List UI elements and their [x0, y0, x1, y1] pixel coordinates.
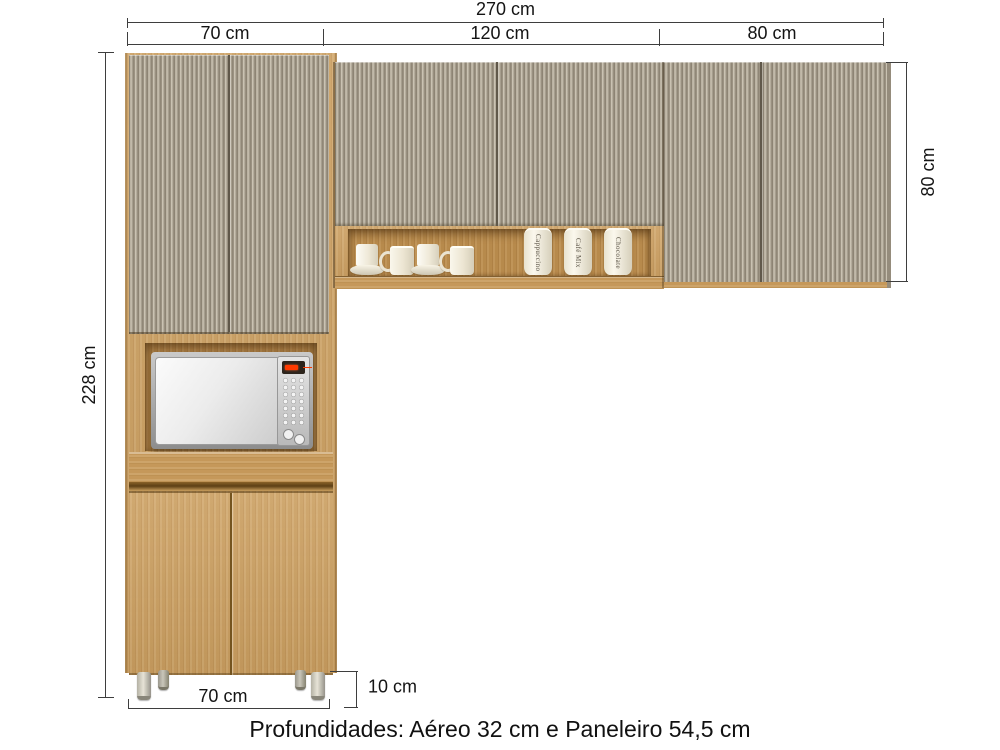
wall-cabinet-right [662, 62, 891, 288]
dim-total-height: 228 cm [105, 52, 106, 698]
dim-feet-height-label: 10 cm [368, 677, 417, 696]
canister-chocolate: Chocolate [604, 228, 632, 275]
dim-tick [127, 18, 128, 28]
upper-door-seam [228, 55, 230, 332]
dim-tick [883, 18, 884, 28]
canister-label: Chocolate [614, 237, 622, 269]
dim-total-height-label: 228 cm [80, 345, 99, 404]
microwave-knobs [282, 427, 306, 445]
shelf-interior: Cappuccino Café Mix Chocolate [348, 229, 651, 276]
dim-segment-left-label: 70 cm [200, 24, 249, 43]
product-dimension-diagram: Cappuccino Café Mix Chocolate 270 cm [0, 0, 1000, 750]
canister-cappuccino: Cappuccino [524, 228, 552, 275]
canister-cafe-mix: Café Mix [564, 228, 592, 275]
microwave-buttons [282, 377, 306, 425]
dim-tick [128, 699, 129, 709]
microwave-display [282, 361, 305, 374]
dim-tick [886, 62, 908, 63]
dim-base-width: 70 cm [128, 708, 330, 709]
cup-base [350, 265, 384, 275]
middle-door-seam [496, 62, 498, 226]
drawer-groove [129, 482, 333, 491]
microwave-control-panel [277, 356, 310, 446]
dim-tick [98, 52, 114, 53]
shelf-bottom-board [335, 276, 664, 289]
dim-base-width-label: 70 cm [198, 687, 247, 706]
cup-body [417, 244, 439, 266]
dim-tick [323, 29, 324, 46]
middle-doors [335, 62, 664, 226]
right-door-seam [760, 62, 762, 282]
paneleiro-upper-doors [129, 55, 329, 334]
depths-caption: Profundidades: Aéreo 32 cm e Paneleiro 5… [0, 716, 1000, 743]
open-shelf: Cappuccino Café Mix Chocolate [335, 226, 664, 288]
dim-tick [330, 671, 358, 672]
dim-tick [329, 699, 330, 709]
foot-back-right [295, 670, 306, 690]
dim-upper-height-label: 80 cm [919, 147, 938, 196]
lower-door-seam [230, 493, 232, 675]
paneleiro-lower-doors [129, 491, 333, 675]
microwave-niche [145, 343, 317, 451]
dim-segments: 70 cm 120 cm 80 cm [127, 44, 884, 45]
canister-label: Cappuccino [534, 234, 542, 271]
dim-segment-middle-label: 120 cm [470, 24, 529, 43]
paneleiro [125, 53, 337, 673]
foot-back-left [158, 670, 169, 690]
dim-tick [98, 697, 114, 698]
dim-tick [883, 32, 884, 46]
cup [450, 246, 474, 275]
drawer [129, 452, 333, 482]
dim-feet-height: 10 cm [356, 671, 357, 708]
dim-upper-height: 80 cm [906, 62, 907, 282]
dim-tick [886, 281, 908, 282]
cup-body [356, 244, 378, 266]
wall-cabinet-middle: Cappuccino Café Mix Chocolate [333, 62, 664, 288]
right-cabinet-bottom-edge [664, 282, 887, 288]
right-doors [664, 62, 887, 282]
foot-front-left [137, 672, 151, 700]
dim-tick [344, 707, 358, 708]
dim-segment-right-label: 80 cm [747, 24, 796, 43]
foot-front-right [311, 672, 325, 700]
dim-total-width-label: 270 cm [476, 0, 535, 19]
dim-tick [659, 29, 660, 46]
microwave [151, 352, 313, 449]
dim-tick [127, 32, 128, 46]
microwave-door [155, 357, 281, 445]
canister-label: Café Mix [574, 238, 582, 268]
